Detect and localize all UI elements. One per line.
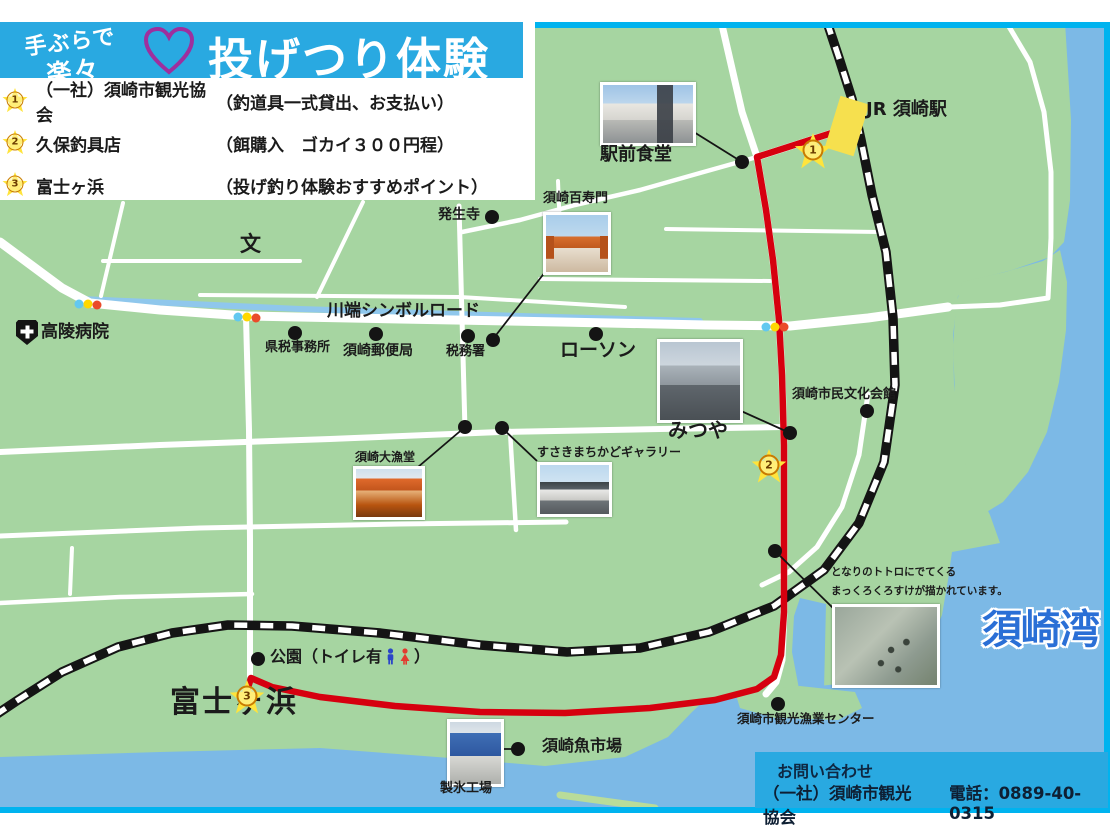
poi-dot-gallery	[495, 421, 509, 435]
legend-name: （一社）須崎市観光協会	[36, 76, 216, 126]
star-number: 1	[7, 91, 24, 108]
legend-star-3: 3	[2, 172, 28, 198]
legend-note: （餌購入 ゴカイ３００円程）	[216, 131, 454, 156]
poi-dot-hyakujumon	[486, 333, 500, 347]
page-title: 投げつり体験	[208, 23, 490, 88]
legend-item-2: 2 久保釣具店 （餌購入 ゴカイ３００円程）	[2, 128, 454, 158]
route-star-2: 2	[751, 449, 787, 485]
traffic-light-west	[75, 300, 102, 310]
poi-dot-koen	[251, 652, 265, 666]
poi-dot-ekimae-shokudo	[735, 155, 749, 169]
heart-icon	[143, 26, 195, 76]
contact-box: お問い合わせ （一社）須崎市観光協会 電話：0889-40-0315	[755, 752, 1108, 808]
contact-phone: 電話：0889-40-0315	[949, 780, 1108, 828]
poi-dot-kenzei	[288, 326, 302, 340]
photo-ekimae-shokudo	[600, 82, 696, 146]
label-hasshoji: 発生寺	[438, 208, 480, 224]
photo-seihyo-kojo	[447, 719, 504, 787]
legend-note: （釣道具一式貸出、お支払い）	[216, 89, 454, 114]
photo-gallery	[537, 462, 612, 517]
label-gallery: すさきまちかどギャラリー	[537, 446, 681, 459]
poi-dot-yubinkyoku	[369, 327, 383, 341]
park-label-close: ）	[414, 648, 430, 666]
label-totoro-note-1: となりのトトロにでてくる	[831, 567, 956, 579]
traffic-light-center	[234, 313, 261, 323]
label-zeimusho: 税務署	[446, 345, 485, 360]
label-yubinkyoku: 須崎郵便局	[343, 344, 413, 360]
poi-dot-hasshoji	[485, 210, 499, 224]
legend-item-1: 1 （一社）須崎市観光協会 （釣道具一式貸出、お支払い）	[2, 86, 454, 116]
label-tairyodo: 須崎大漁堂	[355, 451, 415, 464]
photo-tairyodo	[353, 466, 425, 520]
star-number: 1	[803, 140, 824, 161]
toilet-male-icon	[385, 648, 396, 665]
poi-dot-totoro-wall	[768, 544, 782, 558]
poi-dot-bunka-kaikan	[860, 404, 874, 418]
label-park: 公園（トイレ有 ）	[270, 648, 430, 666]
label-seihyo: 製氷工場	[440, 782, 492, 797]
star-number: 2	[759, 455, 780, 476]
legend-star-2: 2	[2, 130, 28, 156]
route-star-1: 1	[794, 133, 832, 171]
frame-right	[1104, 22, 1110, 813]
traffic-light-east	[762, 323, 789, 332]
photo-mitsuya	[657, 339, 743, 423]
label-hyakujumon: 須崎百寿門	[543, 192, 608, 207]
label-jr-station: JR 須崎駅	[866, 100, 947, 120]
legend-name: 久保釣具店	[36, 131, 216, 156]
title-banner: 手ぶらで 楽々 投げつり体験	[0, 22, 523, 78]
contact-heading: お問い合わせ	[777, 758, 873, 782]
label-uoichiba: 須崎魚市場	[542, 737, 622, 755]
hospital-cross-icon	[16, 320, 38, 345]
toilet-female-icon	[399, 648, 411, 665]
label-kenzei: 県税事務所	[265, 341, 330, 356]
label-school-mark: 文	[240, 233, 261, 257]
label-gyogyo-center: 須崎市観光漁業センター	[737, 712, 875, 726]
label-ekimae-shokudo: 駅前食堂	[600, 145, 672, 165]
label-mitsuya: みつや	[668, 419, 728, 441]
poi-dot-mitsuya	[783, 426, 797, 440]
hospital-marker: 高陵病院	[16, 320, 109, 345]
fishing-experience-map: JR 須崎駅 駅前食堂 発生寺 須崎百寿門 川端シンボルロード 県税事務所 須崎…	[0, 0, 1114, 835]
label-totoro-note-2: まっくろくろすけが描かれています。	[831, 586, 1008, 598]
poi-dot-tairyodo	[458, 420, 472, 434]
legend-name: 富士ヶ浜	[36, 173, 216, 198]
star-number: 3	[237, 686, 258, 707]
star-number: 2	[7, 133, 24, 150]
photo-hyakujumon	[543, 212, 611, 275]
contact-org: （一社）須崎市観光協会	[763, 780, 925, 828]
label-lawson: ローソン	[560, 340, 636, 361]
poi-dot-uoichiba	[511, 742, 525, 756]
star-number: 3	[7, 175, 24, 192]
photo-totoro-wall	[832, 604, 940, 688]
poi-dot-zeimusho	[461, 329, 475, 343]
legend-item-3: 3 富士ヶ浜 （投げ釣り体験おすすめポイント）	[2, 170, 488, 200]
label-susaki-bay: 須崎湾	[982, 608, 1099, 653]
legend-panel: 手ぶらで 楽々 投げつり体験 1 （一社）須崎市観光協会 （釣道具一式貸出、お支…	[0, 22, 535, 200]
label-bunka-kaikan: 須崎市民文化会館	[792, 388, 896, 403]
route-star-3: 3	[229, 680, 265, 716]
poi-dot-gyogyo-center	[771, 697, 785, 711]
label-hospital: 高陵病院	[41, 323, 109, 342]
legend-star-1: 1	[2, 88, 28, 114]
park-label-text: 公園（トイレ有	[270, 648, 382, 666]
legend-note: （投げ釣り体験おすすめポイント）	[216, 173, 488, 198]
label-symbol-road: 川端シンボルロード	[327, 302, 480, 321]
